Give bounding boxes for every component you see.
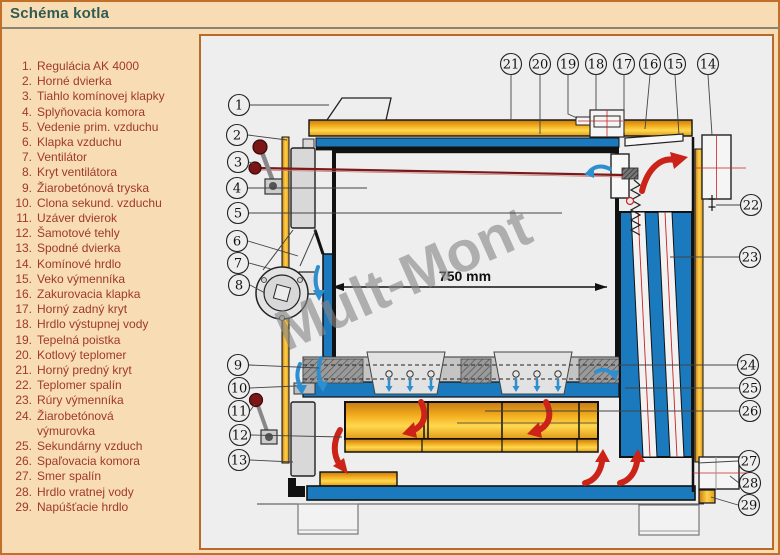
title-underline bbox=[2, 27, 780, 29]
part-label: Šamotové tehly bbox=[37, 226, 120, 241]
callout-6: 6 bbox=[227, 231, 248, 252]
part-number: 20. bbox=[8, 348, 32, 363]
part-number: 18. bbox=[8, 317, 32, 332]
part-item: 2.Horné dvierka bbox=[8, 74, 196, 89]
callout-26: 26 bbox=[740, 401, 761, 422]
part-item: 12.Šamotové tehly bbox=[8, 226, 196, 241]
part-number: 8. bbox=[8, 165, 32, 180]
part-label: Kotlový teplomer bbox=[37, 348, 126, 363]
part-number: 2. bbox=[8, 74, 32, 89]
part-number: 12. bbox=[8, 226, 32, 241]
callout-8: 8 bbox=[229, 275, 250, 296]
svg-text:26: 26 bbox=[742, 405, 759, 420]
svg-text:3: 3 bbox=[234, 156, 242, 171]
callout-16: 16 bbox=[640, 54, 661, 75]
part-label: Sekundárny vzduch bbox=[37, 439, 142, 454]
callout-14: 14 bbox=[698, 54, 719, 75]
part-item: 4.Splyňovacia komora bbox=[8, 105, 196, 120]
part-label: Napúšťacie hrdlo bbox=[37, 500, 128, 515]
svg-text:1: 1 bbox=[235, 99, 243, 114]
part-number: 11. bbox=[8, 211, 32, 226]
part-number: 27. bbox=[8, 469, 32, 484]
svg-text:29: 29 bbox=[741, 499, 758, 514]
part-item: 22.Teplomer spalín bbox=[8, 378, 196, 393]
part-item: 24.Žiarobetónová výmurovka bbox=[8, 409, 196, 439]
callout-25: 25 bbox=[740, 378, 761, 399]
svg-text:18: 18 bbox=[588, 58, 605, 73]
part-number: 26. bbox=[8, 454, 32, 469]
svg-text:20: 20 bbox=[532, 58, 549, 73]
callout-23: 23 bbox=[740, 247, 761, 268]
callout-24: 24 bbox=[738, 355, 759, 376]
part-item: 23.Rúry výmenníka bbox=[8, 393, 196, 408]
callout-17: 17 bbox=[614, 54, 635, 75]
svg-text:27: 27 bbox=[741, 455, 758, 470]
part-item: 3.Tiahlo komínovej klapky bbox=[8, 89, 196, 104]
part-label: Ventilátor bbox=[37, 150, 87, 165]
part-label: Zakurovacia klapka bbox=[37, 287, 140, 302]
part-item: 5.Vedenie prim. vzduchu bbox=[8, 120, 196, 135]
svg-text:25: 25 bbox=[742, 382, 759, 397]
part-item: 1.Regulácia AK 4000 bbox=[8, 59, 196, 74]
part-label: Horný predný kryt bbox=[37, 363, 132, 378]
part-item: 7.Ventilátor bbox=[8, 150, 196, 165]
svg-text:11: 11 bbox=[231, 405, 248, 420]
svg-text:9: 9 bbox=[234, 359, 242, 374]
callout-4: 4 bbox=[227, 178, 248, 199]
top-water-jacket bbox=[316, 138, 619, 147]
part-item: 6.Klapka vzduchu bbox=[8, 135, 196, 150]
part-item: 16.Zakurovacia klapka bbox=[8, 287, 196, 302]
part-item: 18.Hrdlo výstupnej vody bbox=[8, 317, 196, 332]
callout-27: 27 bbox=[739, 451, 760, 472]
svg-text:19: 19 bbox=[560, 58, 577, 73]
callout-9: 9 bbox=[228, 355, 249, 376]
part-item: 28.Hrdlo vratnej vody bbox=[8, 485, 196, 500]
part-number: 17. bbox=[8, 302, 32, 317]
boiler-schema-page: { "page": { "title": "Schéma kotla" }, "… bbox=[0, 0, 780, 555]
part-item: 8.Kryt ventilátora bbox=[8, 165, 196, 180]
callout-22: 22 bbox=[741, 195, 762, 216]
part-number: 23. bbox=[8, 393, 32, 408]
callout-7: 7 bbox=[228, 253, 249, 274]
part-item: 19.Tepelná poistka bbox=[8, 333, 196, 348]
svg-text:15: 15 bbox=[667, 58, 684, 73]
part-number: 29. bbox=[8, 500, 32, 515]
callout-21: 21 bbox=[501, 54, 522, 75]
callout-28: 28 bbox=[740, 473, 761, 494]
part-label: Tepelná poistka bbox=[37, 333, 120, 348]
nozzle-zone bbox=[303, 352, 619, 397]
part-item: 17.Horný zadný kryt bbox=[8, 302, 196, 317]
callout-10: 10 bbox=[229, 378, 250, 399]
part-number: 28. bbox=[8, 485, 32, 500]
part-label: Veko výmenníka bbox=[37, 272, 125, 287]
part-number: 9. bbox=[8, 181, 32, 196]
part-label: Uzáver dvierok bbox=[37, 211, 117, 226]
part-label: Tiahlo komínovej klapky bbox=[37, 89, 165, 104]
bottom-water-jacket bbox=[307, 486, 695, 500]
part-label: Spodné dvierka bbox=[37, 241, 120, 256]
part-label: Žiarobetónová tryska bbox=[37, 181, 149, 196]
part-number: 15. bbox=[8, 272, 32, 287]
callout-19: 19 bbox=[558, 54, 579, 75]
part-label: Hrdlo vratnej vody bbox=[37, 485, 134, 500]
part-number: 13. bbox=[8, 241, 32, 256]
part-label: Smer spalín bbox=[37, 469, 101, 484]
part-label: Horný zadný kryt bbox=[37, 302, 127, 317]
part-label: Teplomer spalín bbox=[37, 378, 122, 393]
svg-text:12: 12 bbox=[232, 429, 249, 444]
part-label: Vedenie prim. vzduchu bbox=[37, 120, 158, 135]
part-number: 25. bbox=[8, 439, 32, 454]
part-number: 7. bbox=[8, 150, 32, 165]
part-number: 3. bbox=[8, 89, 32, 104]
svg-text:16: 16 bbox=[642, 58, 659, 73]
callout-5: 5 bbox=[228, 203, 249, 224]
callout-13: 13 bbox=[229, 450, 250, 471]
callout-2: 2 bbox=[227, 125, 248, 146]
part-item: 26.Spaľovacia komora bbox=[8, 454, 196, 469]
callout-3: 3 bbox=[228, 152, 249, 173]
part-item: 9.Žiarobetónová tryska bbox=[8, 181, 196, 196]
callout-29: 29 bbox=[739, 495, 760, 516]
top-plate bbox=[316, 147, 619, 150]
lower-lining-slab bbox=[320, 472, 397, 486]
callout-1: 1 bbox=[229, 95, 250, 116]
part-item: 27.Smer spalín bbox=[8, 469, 196, 484]
svg-text:2: 2 bbox=[233, 129, 241, 144]
svg-text:5: 5 bbox=[234, 207, 242, 222]
callout-11: 11 bbox=[229, 401, 250, 422]
part-label: Komínové hrdlo bbox=[37, 257, 121, 272]
svg-text:14: 14 bbox=[700, 58, 717, 73]
part-item: 21.Horný predný kryt bbox=[8, 363, 196, 378]
top-insulation bbox=[309, 120, 692, 136]
parts-list: 1.Regulácia AK 40002.Horné dvierka3.Tiah… bbox=[8, 59, 196, 515]
part-number: 1. bbox=[8, 59, 32, 74]
part-label: Rúry výmenníka bbox=[37, 393, 124, 408]
part-number: 16. bbox=[8, 287, 32, 302]
svg-text:4: 4 bbox=[233, 182, 241, 197]
part-label: Splyňovacia komora bbox=[37, 105, 145, 120]
svg-text:10: 10 bbox=[231, 382, 248, 397]
fill-port bbox=[699, 490, 715, 503]
part-label: Kryt ventilátora bbox=[37, 165, 117, 180]
svg-text:21: 21 bbox=[503, 58, 520, 73]
callout-20: 20 bbox=[530, 54, 551, 75]
part-item: 20.Kotlový teplomer bbox=[8, 348, 196, 363]
part-label: Spaľovacia komora bbox=[37, 454, 140, 469]
part-number: 10. bbox=[8, 196, 32, 211]
boiler-schematic: 750 mm Mult-Mont 12345678910111213141516… bbox=[199, 34, 774, 550]
door-hinge bbox=[303, 139, 314, 148]
part-number: 5. bbox=[8, 120, 32, 135]
part-item: 15.Veko výmenníka bbox=[8, 272, 196, 287]
part-label: Horné dvierka bbox=[37, 74, 112, 89]
part-item: 11.Uzáver dvierok bbox=[8, 211, 196, 226]
svg-text:7: 7 bbox=[234, 257, 242, 272]
svg-text:6: 6 bbox=[233, 235, 241, 250]
svg-text:23: 23 bbox=[742, 251, 759, 266]
part-label: Hrdlo výstupnej vody bbox=[37, 317, 148, 332]
svg-text:28: 28 bbox=[742, 477, 759, 492]
heat-exchanger bbox=[620, 212, 692, 457]
part-number: 14. bbox=[8, 257, 32, 272]
part-item: 10.Clona sekund. vzduchu bbox=[8, 196, 196, 211]
callout-15: 15 bbox=[665, 54, 686, 75]
part-label: Regulácia AK 4000 bbox=[37, 59, 139, 74]
svg-text:8: 8 bbox=[235, 279, 243, 294]
callout-18: 18 bbox=[586, 54, 607, 75]
part-label: Klapka vzduchu bbox=[37, 135, 122, 150]
part-item: 13.Spodné dvierka bbox=[8, 241, 196, 256]
lower-door bbox=[291, 402, 315, 476]
part-number: 4. bbox=[8, 105, 32, 120]
page-title: Schéma kotla bbox=[10, 5, 109, 22]
part-number: 6. bbox=[8, 135, 32, 150]
part-item: 29.Napúšťacie hrdlo bbox=[8, 500, 196, 515]
part-number: 19. bbox=[8, 333, 32, 348]
part-label: Clona sekund. vzduchu bbox=[37, 196, 162, 211]
part-label: Žiarobetónová výmurovka bbox=[37, 409, 149, 439]
part-number: 22. bbox=[8, 378, 32, 393]
part-item: 25.Sekundárny vzduch bbox=[8, 439, 196, 454]
svg-text:24: 24 bbox=[740, 359, 757, 374]
boiler-diagram-panel: 750 mm Mult-Mont 12345678910111213141516… bbox=[199, 34, 774, 550]
svg-text:17: 17 bbox=[616, 58, 633, 73]
callout-12: 12 bbox=[230, 425, 251, 446]
svg-text:13: 13 bbox=[231, 454, 248, 469]
part-number: 21. bbox=[8, 363, 32, 378]
part-number: 24. bbox=[8, 409, 32, 439]
part-item: 14.Komínové hrdlo bbox=[8, 257, 196, 272]
svg-text:22: 22 bbox=[743, 199, 760, 214]
